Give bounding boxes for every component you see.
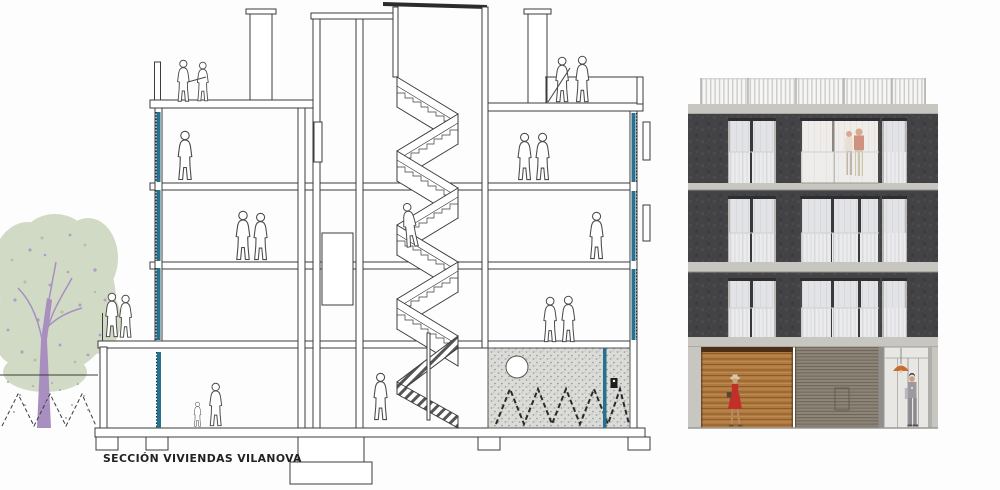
floor-slab-l2 [150, 262, 637, 269]
wall-left-ground [100, 347, 107, 428]
facade-window-f3-left [728, 278, 776, 337]
figure-stair-lower [374, 373, 387, 419]
facade-window-f2-middle [800, 196, 880, 262]
chimney-right-cap [524, 9, 551, 14]
roof-slab-right [485, 103, 643, 111]
elevator-car [322, 233, 353, 305]
wall-core-left [298, 108, 305, 428]
valve-box [611, 378, 618, 388]
figure-f3-right-a [544, 297, 557, 341]
parapet-left [155, 62, 161, 100]
figure-ground-mother [210, 383, 222, 425]
facade-window-f1-left [728, 118, 776, 183]
core-foundation-pad [290, 462, 372, 484]
figure-roof-right-b [576, 56, 589, 101]
ground-wood-door [701, 347, 793, 428]
facade-window-f2-left [728, 196, 776, 262]
facade-elevation-drawing [688, 78, 940, 430]
stair-tower-wall-right [482, 7, 488, 348]
basement-ground-fill [488, 348, 630, 428]
figure-ground-child [194, 402, 201, 426]
core-foundation-stem [298, 437, 364, 462]
floor-slab-l1 [150, 183, 637, 190]
elevator-shaft-wall-right [356, 19, 363, 428]
parapet-right [637, 77, 643, 104]
figure-f3-right-b [562, 296, 575, 341]
stair-bottom-post [427, 333, 430, 420]
facade-ground-floor [688, 347, 938, 428]
footing-3 [478, 437, 500, 450]
chimney-left-cap [246, 9, 276, 14]
ground-pilaster-left [688, 347, 701, 428]
figure-f2-left-a [236, 211, 250, 259]
figure-f2-right [590, 212, 603, 258]
ground-pilaster-right [932, 347, 938, 428]
facade-window-f1-right [882, 118, 907, 183]
facade-roof-railing [700, 78, 926, 104]
figure-f2-left-b [254, 213, 267, 259]
figure-f1-left [178, 131, 192, 179]
elevator-shaft-cap [311, 13, 397, 19]
roof-slab-left [150, 100, 315, 108]
elevator-door [314, 122, 322, 162]
footing-2 [146, 437, 168, 450]
chimney-left [250, 13, 272, 100]
stair-tower-wall-left [393, 7, 398, 77]
drain-line [603, 348, 607, 428]
facade-loggia-f1 [800, 118, 880, 183]
facade-window-f2-right [882, 196, 907, 262]
shutter-right-f2 [643, 205, 650, 241]
shutter-right-f1 [643, 122, 650, 160]
figure-f3-balcony-b [120, 295, 132, 337]
chimney-right [528, 13, 547, 103]
drawing-caption: SECCIÓN VIVIENDAS VILANOVA [103, 452, 302, 465]
building-section-drawing: SECCIÓN VIVIENDAS VILANOVA [0, 0, 690, 490]
ground-slab [95, 428, 645, 437]
figure-roof-left-a [178, 60, 190, 101]
elevator-shaft-wall-left [313, 19, 320, 428]
ground-entrance [879, 347, 933, 428]
facade-parapet-band [688, 104, 938, 114]
facade-window-f3-middle [800, 278, 880, 337]
figure-roof-left-b [197, 62, 208, 101]
staircase [397, 77, 458, 428]
architectural-drawing-sheet: SECCIÓN VIVIENDAS VILANOVA [0, 0, 1000, 490]
pipe-circle [506, 356, 528, 378]
figure-f1-right-a [518, 133, 531, 179]
valve-dot [613, 380, 615, 382]
footing-4 [628, 437, 650, 450]
ground-louver-panel [795, 347, 881, 428]
footing-1 [96, 437, 118, 450]
figure-f1-right-b [536, 133, 549, 179]
stair-tower-roof [383, 2, 487, 9]
facade-window-f3-right [882, 278, 907, 337]
